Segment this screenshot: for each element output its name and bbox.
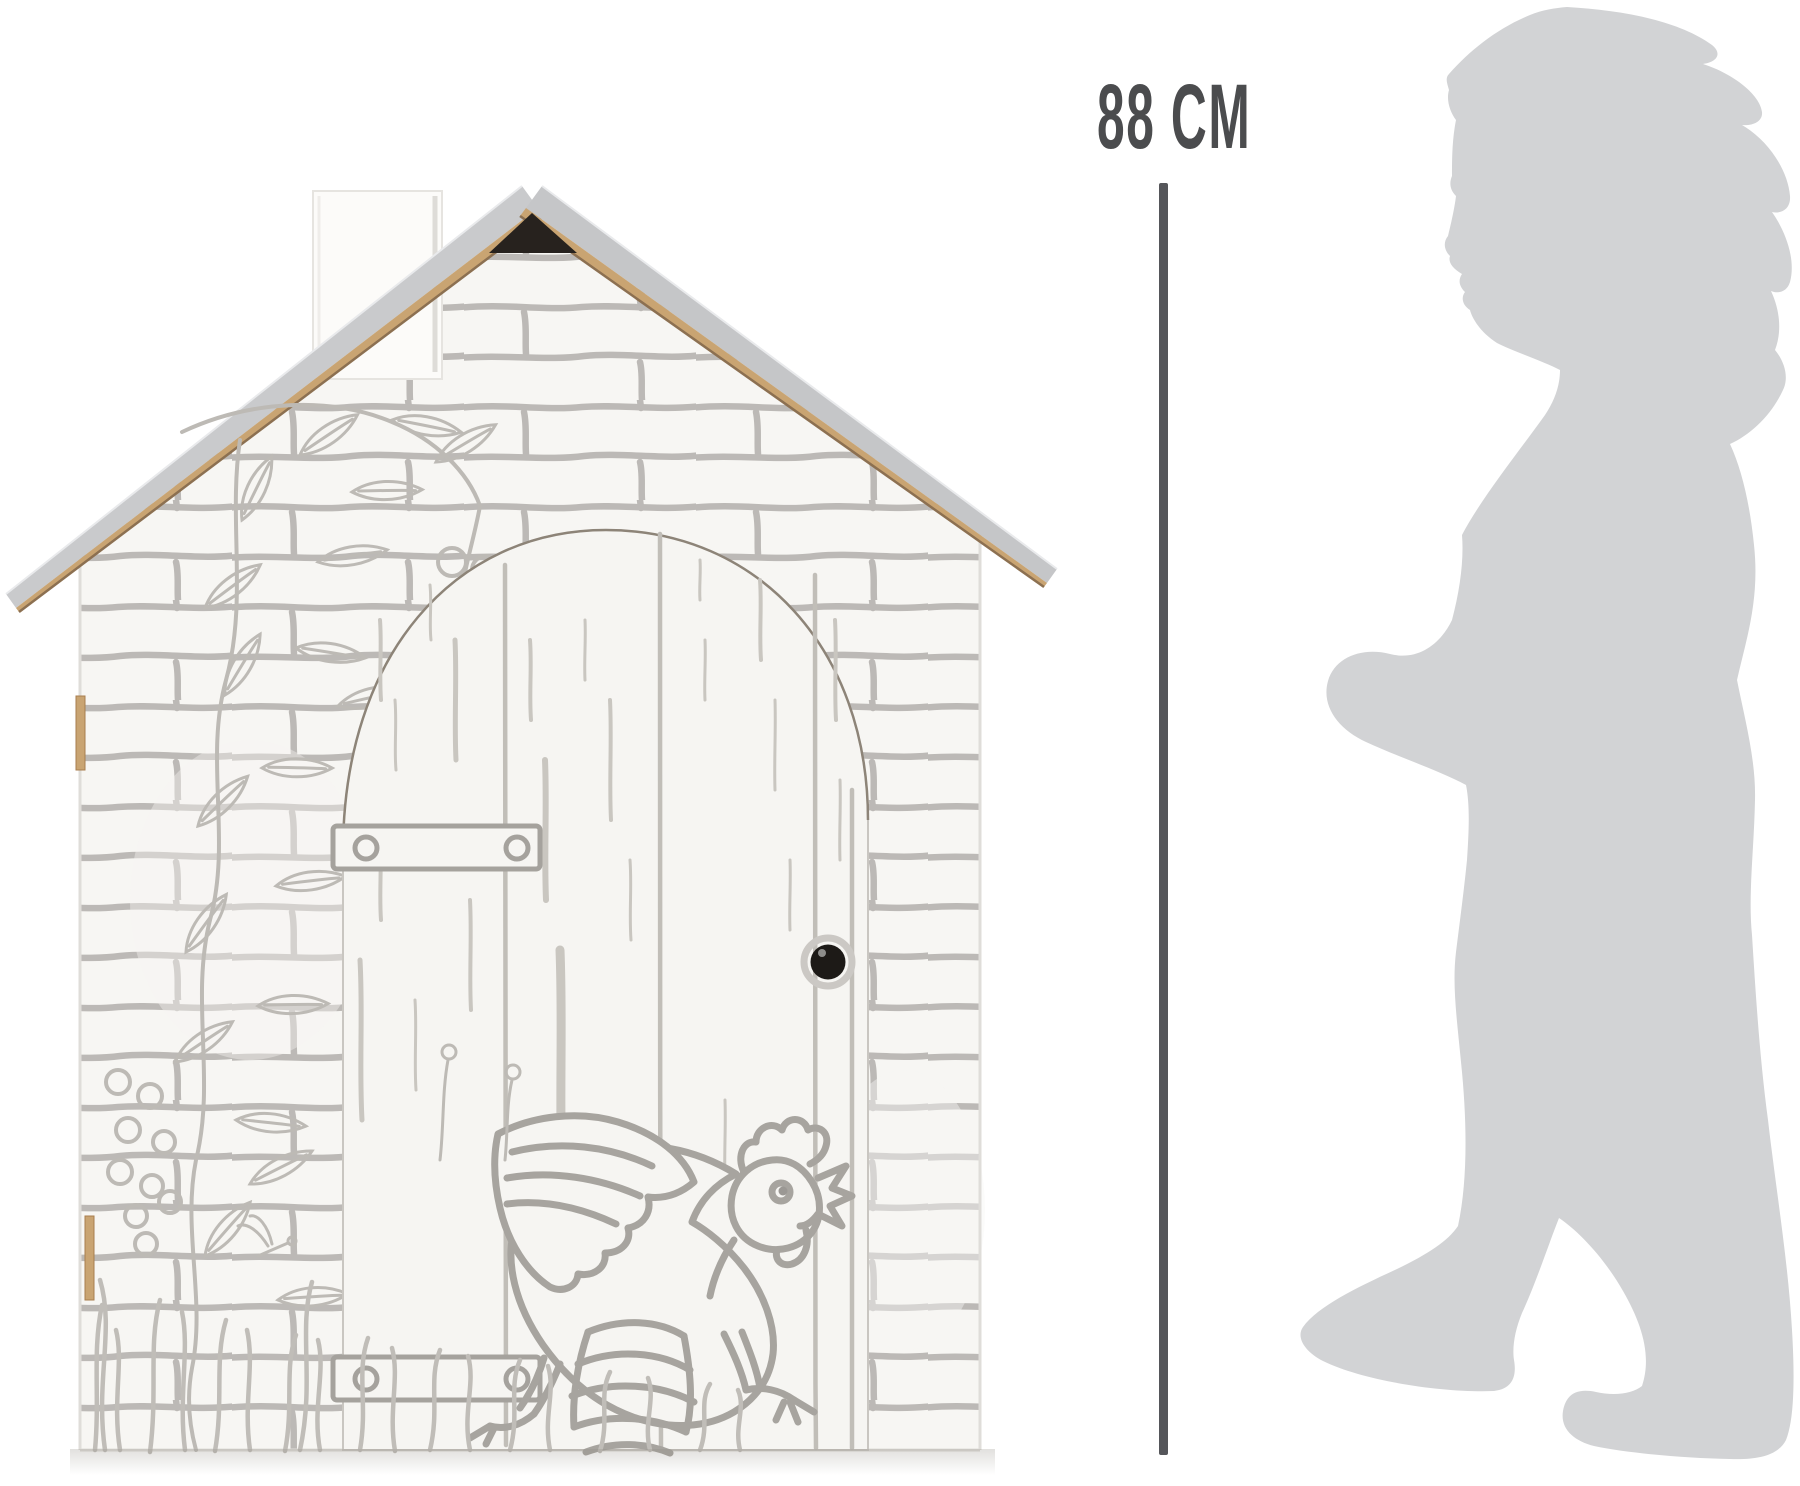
house-shadow <box>70 1449 995 1475</box>
door-knob <box>804 938 852 986</box>
hinge-top <box>333 826 540 869</box>
child-silhouette <box>1300 7 1793 1459</box>
height-label: 88 CM <box>1097 71 1251 163</box>
figure-canvas <box>0 0 1800 1486</box>
size-comparison-figure: 88 CM <box>0 0 1800 1486</box>
playhouse-illustration <box>6 186 1057 1475</box>
measure-line <box>1159 183 1168 1455</box>
